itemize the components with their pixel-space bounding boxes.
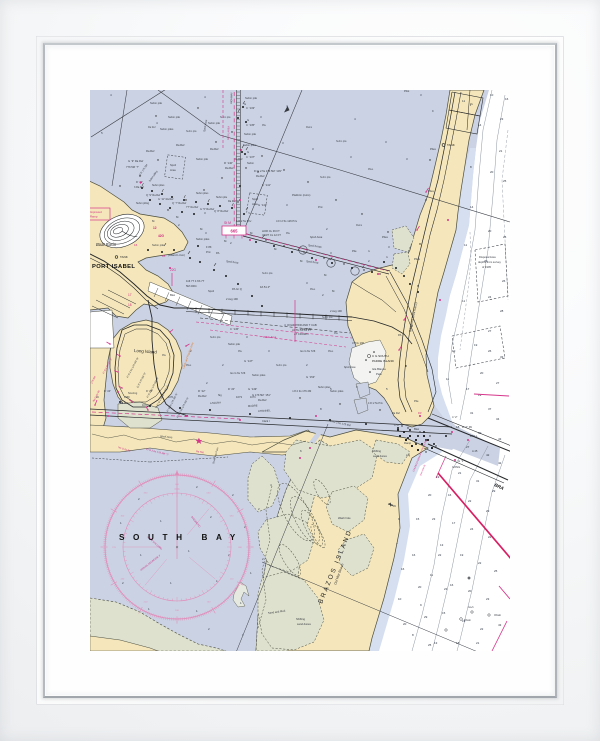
svg-text:Bkw: Bkw [414, 427, 419, 431]
svg-text:Q “8” Ra Ref: Q “8” Ra Ref [214, 210, 228, 213]
svg-text:Subm pile: Subm pile [320, 176, 331, 179]
svg-text:TANK: TANK [447, 143, 455, 147]
svg-text:27: 27 [496, 381, 500, 385]
svg-text:PADRE ISLAND: PADRE ISLAND [372, 359, 395, 363]
svg-text:42G: 42G [158, 234, 165, 238]
svg-text:Piles: Piles [328, 350, 334, 353]
svg-text:25: 25 [428, 643, 432, 647]
svg-text:20: 20 [468, 589, 472, 593]
svg-text:Subm piles: Subm piles [252, 373, 266, 377]
svg-text:20: 20 [418, 585, 422, 589]
svg-text:6 R 2 5s Priv: 6 R 2 5s Priv [236, 219, 252, 223]
svg-text:Ra Ref: Ra Ref [198, 394, 207, 398]
svg-text:3 Ra Ref: 3 Ra Ref [134, 186, 144, 189]
svg-text:13: 13 [434, 641, 438, 645]
svg-text:Pile: Pile [352, 249, 357, 253]
svg-text:LAGUNA: LAGUNA [210, 400, 221, 405]
svg-text:Subm pile: Subm pile [186, 130, 197, 133]
svg-text:27: 27 [488, 329, 492, 333]
svg-text:Subm: Subm [247, 161, 255, 165]
svg-text:G “143”: G “143” [258, 203, 267, 207]
svg-text:5M 2004: 5M 2004 [186, 284, 197, 288]
svg-text:16: 16 [134, 243, 138, 247]
svg-text:sand dunes: sand dunes [373, 454, 388, 458]
svg-text:Wash hole: Wash hole [338, 516, 351, 520]
svg-text:R “140”: R “140” [224, 161, 233, 165]
svg-text:19: 19 [436, 475, 440, 479]
svg-text:n 8 2 3s 17ft 2M: n 8 2 3s 17ft 2M [292, 389, 312, 393]
svg-text:Disposal Area: Disposal Area [479, 255, 496, 259]
svg-text:Ra Ref: Ra Ref [392, 412, 400, 415]
svg-text:20: 20 [480, 371, 484, 375]
svg-text:Spoil: Spoil [208, 289, 214, 293]
svg-text:10: 10 [398, 597, 402, 601]
svg-text:Clark I: Clark I [262, 419, 270, 423]
svg-text:25: 25 [503, 235, 507, 239]
svg-text:21: 21 [476, 641, 480, 645]
svg-text:Subm pile: Subm pile [210, 336, 221, 339]
svg-text:Subm pile: Subm pile [168, 115, 180, 119]
svg-text:15: 15 [442, 611, 446, 615]
svg-text:G “1”: G “1” [458, 459, 464, 463]
svg-text:29: 29 [424, 615, 428, 619]
svg-text:25: 25 [494, 569, 498, 573]
svg-text:1070: 1070 [142, 404, 148, 407]
svg-text:Piles: Piles [430, 147, 436, 151]
svg-text:29: 29 [486, 509, 490, 513]
svg-text:PA: PA [393, 505, 396, 508]
svg-text:1073: 1073 [250, 396, 256, 399]
svg-text:Spoil: Spoil [170, 163, 176, 167]
svg-text:Sig: Sig [218, 394, 222, 397]
svg-text:G: G [247, 150, 249, 154]
svg-text:Ra Ref: Ra Ref [120, 402, 128, 405]
svg-text:20: 20 [403, 622, 407, 626]
svg-text:TANK: TANK [120, 255, 128, 259]
svg-text:✕: ✕ [175, 545, 178, 550]
svg-text:11: 11 [462, 99, 465, 103]
svg-text:Ra Ref: Ra Ref [256, 174, 265, 178]
svg-text:Priv: Priv [206, 250, 211, 254]
svg-text:Pile: Pile [162, 354, 167, 357]
svg-text:3 Priv 190: 3 Priv 190 [352, 341, 365, 345]
svg-text:2 kts 1983: 2 kts 1983 [300, 328, 312, 331]
svg-text:Snoring: Snoring [128, 391, 138, 395]
svg-text:20: 20 [488, 229, 492, 233]
svg-text:Subm pile: Subm pile [196, 157, 208, 161]
svg-text:Isla Blanca: Isla Blanca [372, 367, 386, 371]
svg-text:22: 22 [480, 627, 484, 631]
svg-text:Pilot: Pilot [404, 90, 409, 93]
svg-text:CHANNEL: CHANNEL [258, 408, 272, 413]
svg-text:Subm piles: Subm piles [196, 192, 209, 195]
svg-text:FR: FR [418, 411, 422, 415]
svg-text:Ramp: Ramp [404, 441, 412, 445]
svg-text:21: 21 [458, 471, 462, 475]
svg-text:Ra Ref: Ra Ref [148, 126, 156, 129]
svg-text:GONG: GONG [452, 465, 460, 469]
svg-text:34: 34 [496, 417, 500, 421]
svg-text:Pile: Pile [414, 399, 419, 403]
svg-text:Obstn: Obstn [494, 613, 502, 617]
svg-text:G: G [368, 250, 370, 253]
svg-text:Iso G 6s 72ft: Iso G 6s 72ft [230, 371, 245, 375]
svg-text:11: 11 [446, 377, 449, 381]
svg-text:Subm piling: Subm piling [136, 202, 150, 205]
svg-text:PA: PA [398, 333, 402, 337]
svg-text:22: 22 [438, 553, 442, 557]
svg-text:4 FI 2 5s Priv: 4 FI 2 5s Priv [368, 402, 383, 405]
svg-text:Q “7” Ra Ref: Q “7” Ra Ref [172, 202, 186, 205]
svg-text:33: 33 [500, 355, 504, 359]
svg-text:Subm piles: Subm piles [243, 143, 257, 147]
svg-text:C “137”: C “137” [246, 155, 255, 159]
svg-text:12: 12 [153, 226, 157, 230]
svg-text:OVHD PWR AND T CAB: OVHD PWR AND T CAB [287, 323, 317, 327]
svg-text:17: 17 [452, 521, 456, 525]
svg-text:Iso G 6s 72ft: Iso G 6s 72ft [300, 349, 315, 353]
svg-text:18: 18 [128, 303, 132, 307]
svg-text:Park: Park [376, 372, 382, 376]
svg-text:MADRE: MADRE [248, 403, 258, 408]
svg-text:10: 10 [490, 93, 494, 97]
svg-text:Subm pile: Subm pile [245, 96, 257, 100]
svg-text:16: 16 [401, 567, 405, 571]
svg-text:24: 24 [470, 527, 474, 531]
svg-text:Pile: Pile [286, 232, 291, 235]
svg-text:18: 18 [456, 425, 460, 429]
svg-text:21: 21 [499, 149, 503, 153]
svg-text:7T” Ra Ref: 7T” Ra Ref [186, 206, 199, 209]
svg-text:16: 16 [505, 97, 509, 101]
svg-text:Subm piles: Subm piles [330, 389, 344, 393]
svg-text:4 FI 2 5s 12ft Priv: 4 FI 2 5s 12ft Priv [276, 219, 298, 223]
svg-text:Pile: Pile [238, 350, 243, 353]
svg-text:77ft 5M “7”: 77ft 5M “7” [126, 165, 139, 169]
svg-text:G: G [244, 102, 246, 106]
svg-text:Piles: Piles [382, 235, 388, 239]
svg-text:Piles: Piles [414, 257, 420, 261]
svg-text:C “145”: C “145” [230, 327, 239, 331]
svg-text:PORT ISABEL: PORT ISABEL [92, 264, 135, 270]
svg-text:39: 39 [478, 431, 482, 435]
svg-text:13: 13 [440, 543, 444, 547]
svg-text:Subm pile: Subm pile [276, 364, 287, 367]
svg-text:Ra Ref: Ra Ref [258, 398, 267, 402]
svg-text:SOUTH BAY: SOUTH BAY [119, 533, 244, 542]
svg-text:31: 31 [470, 411, 474, 415]
svg-text:Subm pile: Subm pile [150, 101, 162, 105]
svg-text:St M: St M [224, 221, 231, 225]
svg-text:SPOIL AREA: SPOIL AREA [227, 126, 231, 140]
svg-text:G “147”: G “147” [244, 359, 253, 363]
svg-text:Subm piles: Subm piles [152, 184, 165, 187]
svg-text:Ra Ref: Ra Ref [210, 147, 219, 151]
svg-text:G “149”: G “149” [248, 387, 257, 391]
svg-text:17: 17 [466, 387, 470, 391]
svg-text:Subm pile: Subm pile [322, 316, 333, 319]
svg-text:4 “2”: 4 “2” [452, 415, 458, 419]
svg-text:16: 16 [448, 493, 452, 497]
svg-text:HOR CL 36 FT: HOR CL 36 FT [262, 229, 280, 233]
svg-text:R “2” PA: R “2” PA [462, 425, 472, 429]
svg-text:Pile: Pile [262, 124, 267, 127]
svg-text:C “135”: C “135” [246, 123, 255, 127]
svg-text:G: G [386, 256, 388, 259]
svg-text:Ra Ref: Ra Ref [225, 166, 234, 170]
svg-text:A 45: A 45 [472, 449, 478, 453]
svg-text:Improved: Improved [90, 210, 102, 214]
svg-text:20: 20 [484, 259, 488, 263]
svg-text:Obstn: Obstn [464, 618, 471, 622]
svg-text:Piles: Piles [428, 189, 434, 193]
svg-text:C “141”: C “141” [262, 183, 271, 187]
svg-text:G: G [247, 118, 249, 122]
svg-text:Ruins: Ruins [306, 126, 313, 129]
svg-text:Subm pile: Subm pile [208, 121, 220, 125]
svg-text:10: 10 [452, 349, 456, 353]
svg-text:Area: Area [170, 168, 176, 172]
svg-text:Subm pile: Subm pile [244, 132, 256, 136]
svg-text:R “24”: R “24” [104, 390, 111, 393]
svg-text:43: 43 [498, 623, 502, 627]
svg-text:22G: 22G [170, 268, 177, 272]
svg-text:depths from survey: depths from survey [478, 260, 502, 264]
svg-text:Ramp: Ramp [90, 215, 98, 219]
svg-text:F 8ft: F 8ft [206, 245, 212, 249]
svg-text:28: 28 [500, 309, 504, 313]
svg-text:Subm pile: Subm pile [152, 243, 164, 247]
svg-text:Ra Ref: Ra Ref [234, 157, 243, 161]
svg-text:31: 31 [476, 479, 480, 483]
svg-text:11ft 7T 4 6S 7T: 11ft 7T 4 6S 7T [186, 279, 205, 283]
svg-text:23: 23 [500, 117, 504, 121]
svg-text:Subm pile: Subm pile [262, 272, 273, 275]
svg-text:25: 25 [503, 179, 507, 183]
svg-text:Piles: Piles [186, 364, 192, 367]
svg-text:Piles: Piles [368, 168, 374, 171]
svg-text:43: 43 [498, 437, 502, 441]
svg-text:22: 22 [478, 561, 482, 565]
svg-text:24: 24 [488, 295, 492, 299]
svg-text:Area: Area [252, 202, 258, 206]
svg-text:1073: 1073 [236, 395, 242, 399]
svg-text:Priv: Priv [318, 205, 323, 209]
svg-text:15: 15 [416, 517, 420, 521]
svg-text:20: 20 [490, 170, 494, 174]
svg-text:Ldg: Ldg [406, 454, 411, 457]
svg-text:37: 37 [488, 407, 492, 411]
svg-text:1069: 1069 [124, 396, 130, 399]
svg-text:Pile: Pile [334, 332, 339, 335]
svg-text:11: 11 [462, 299, 465, 303]
svg-text:16: 16 [450, 583, 454, 587]
svg-text:Boat Basin: Boat Basin [96, 242, 117, 247]
svg-text:Subm pile: Subm pile [336, 140, 347, 143]
svg-text:26: 26 [488, 349, 492, 353]
svg-text:2 Avg 190: 2 Avg 190 [226, 297, 238, 301]
svg-text:Shifting: Shifting [296, 617, 305, 621]
svg-text:G “11” Ra Ref: G “11” Ra Ref [158, 198, 174, 201]
svg-text:Ra Ref: Ra Ref [228, 200, 236, 203]
svg-text:PA Gr Q: PA Gr Q [232, 287, 242, 291]
svg-text:R “20”: R “20” [228, 388, 235, 391]
svg-text:G “5” Ra Ref: G “5” Ra Ref [200, 208, 214, 211]
svg-text:23: 23 [486, 597, 490, 601]
svg-text:C “133”: C “133” [246, 106, 255, 110]
svg-text:Shifting: Shifting [372, 449, 381, 453]
svg-text:19: 19 [478, 393, 482, 397]
svg-text:22: 22 [468, 499, 472, 503]
svg-text:Ra Ref: Ra Ref [176, 143, 185, 147]
svg-text:Cable Area: Cable Area [263, 335, 277, 339]
svg-text:HIGHWAY: HIGHWAY [230, 92, 233, 104]
svg-text:19: 19 [474, 343, 478, 347]
svg-text:Subm piles: Subm piles [196, 237, 210, 241]
svg-text:42: 42 [486, 453, 490, 457]
svg-text:19: 19 [460, 553, 464, 557]
svg-text:sand dunes: sand dunes [297, 622, 312, 626]
svg-text:2 Avg 190: 2 Avg 190 [330, 309, 342, 313]
svg-text:Bkw: Bkw [170, 293, 175, 297]
svg-text:Ra Ref: Ra Ref [146, 149, 155, 153]
svg-text:VERT CL 12 FT: VERT CL 12 FT [262, 233, 281, 237]
svg-text:PA: PA [216, 251, 220, 255]
svg-text:14: 14 [470, 205, 474, 209]
svg-text:C G SOUTH: C G SOUTH [372, 354, 389, 358]
svg-text:G “153”: G “153” [306, 375, 315, 379]
svg-text:Ruins: Ruins [356, 224, 363, 227]
svg-text:27: 27 [466, 445, 470, 449]
svg-text:11: 11 [430, 573, 433, 577]
svg-text:Subm piles: Subm piles [160, 127, 174, 131]
svg-text:Spoil Area: Spoil Area [344, 366, 356, 369]
svg-text:of 1995: of 1995 [482, 265, 491, 269]
svg-text:WELL: WELL [470, 434, 478, 438]
svg-text:Subm pile: Subm pile [216, 196, 228, 199]
svg-text:Gt+h: Gt+h [468, 606, 474, 609]
svg-text:(Aband Lt Ho): (Aband Lt Ho) [168, 253, 185, 257]
svg-text:Subm pile: Subm pile [220, 116, 231, 119]
svg-text:26: 26 [502, 279, 506, 283]
svg-text:16: 16 [412, 553, 416, 557]
svg-text:42: 42 [498, 461, 502, 465]
svg-text:18: 18 [162, 254, 166, 258]
svg-text:R “22”: R “22” [198, 389, 206, 393]
svg-text:Spoil Area: Spoil Area [310, 235, 323, 239]
svg-text:20: 20 [428, 493, 432, 497]
svg-text:11: 11 [464, 243, 467, 247]
svg-text:23: 23 [444, 587, 448, 591]
svg-text:23: 23 [432, 517, 436, 521]
svg-text:Platform (ruins): Platform (ruins) [292, 193, 310, 197]
svg-text:17: 17 [128, 293, 132, 297]
svg-text:665: 665 [231, 229, 239, 234]
svg-text:G “9” Ra Ref: G “9” Ra Ref [128, 159, 143, 163]
svg-text:C G: C G [394, 423, 399, 427]
svg-text:FA 51 4*: FA 51 4* [260, 285, 270, 289]
svg-text:P: P [470, 102, 473, 107]
svg-text:14: 14 [478, 123, 482, 127]
svg-text:Spoil: Spoil [252, 197, 258, 201]
svg-text:Piles: Piles [310, 288, 316, 291]
svg-text:29: 29 [492, 489, 496, 493]
svg-text:Q “9” Ra Ref: Q “9” Ra Ref [146, 194, 160, 197]
svg-text:Subm pile: Subm pile [228, 342, 240, 346]
